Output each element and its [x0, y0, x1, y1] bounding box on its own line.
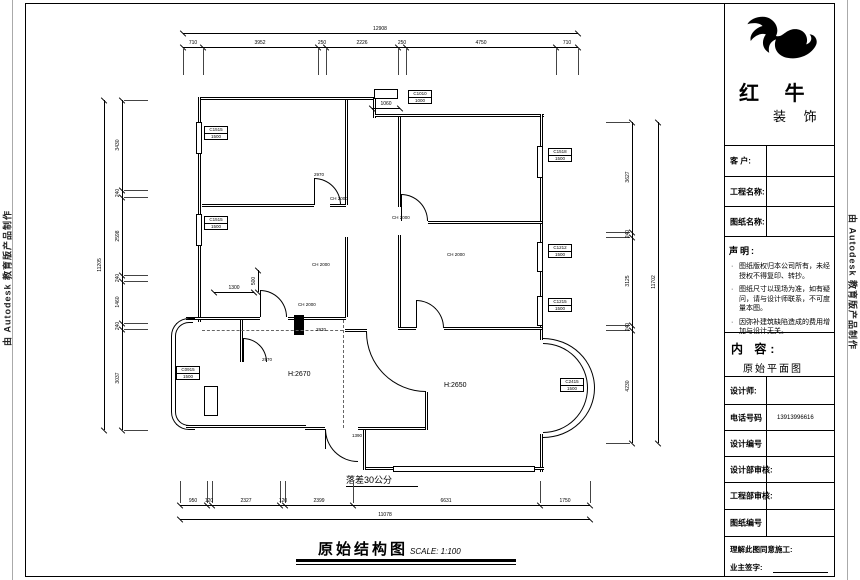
dim-line: [658, 122, 659, 443]
door-arc: [416, 300, 444, 328]
dim-label: 11702: [651, 275, 657, 289]
wall: [444, 327, 542, 330]
dim-label: 3627: [625, 171, 631, 182]
dim-line: [183, 47, 578, 48]
window-tag: C09151500: [176, 366, 200, 380]
brand-area: 红 牛 装 饰: [725, 3, 836, 145]
dim-label: 4750: [475, 40, 486, 46]
statement-item: · 图纸尺寸以现场为准，如有疑问，请与设计师联系，不可度量本图。: [729, 285, 831, 314]
content-heading: 内 容:: [731, 340, 778, 357]
wall: [202, 204, 314, 207]
drop-note-underline: [346, 486, 418, 487]
field-row-designer: 设计师:: [725, 376, 835, 404]
fixture: [204, 386, 218, 416]
content-value: 原始平面图: [743, 360, 803, 375]
field-label: 图纸编号: [730, 518, 762, 529]
window-tag: C12151500: [548, 298, 572, 312]
window: [196, 122, 202, 154]
dim-ext: [326, 49, 327, 75]
dim-label: 11205: [97, 258, 103, 272]
dim-ext: [124, 329, 148, 330]
window-tag: C12121500: [548, 244, 572, 258]
plan-label: 2970: [262, 357, 272, 362]
dim-line: [104, 100, 105, 430]
dim-label: 120: [279, 498, 287, 504]
wall: [186, 425, 306, 428]
cell-divider: [766, 207, 767, 236]
sheet-scale: SCALE: 1:100: [410, 547, 461, 556]
dim-label: 3037: [115, 372, 121, 383]
dim-line: [183, 33, 578, 34]
cell-divider: [766, 457, 767, 482]
dim-ext: [124, 190, 148, 191]
plan-label: CH 2000: [447, 252, 465, 257]
dim-ext: [406, 49, 407, 75]
plan-label: CH 2000: [392, 215, 410, 220]
plan-label: CH 2000: [312, 262, 330, 267]
drawing-sheet: 由 Autodesk 教育版产品制作 由 Autodesk 教育版产品制作: [0, 0, 860, 580]
window-tag-size: 1000: [409, 98, 431, 104]
content-block: 内 容: 原始平面图: [725, 332, 835, 376]
dim-label: 3125: [625, 275, 631, 286]
signature-line: [773, 572, 828, 573]
wall: [345, 100, 348, 205]
statement-block: 声明: · 图纸版权归本公司所有，未经授权不得复印、转抄。 · 图纸尺寸以现场为…: [725, 236, 835, 332]
window-tag-size: 1500: [549, 306, 571, 312]
field-label: 客 户:: [730, 156, 751, 167]
cell-divider: [766, 510, 767, 536]
dashed-line: [343, 320, 344, 428]
brand-name: 红 牛: [739, 77, 815, 106]
dim-label: 710: [563, 40, 571, 46]
dim-ext: [124, 430, 148, 431]
owner-sign-label: 业主签字:: [730, 562, 763, 573]
wall: [200, 97, 376, 100]
field-row-sheet-no: 图纸编号: [725, 509, 835, 536]
field-label: 电话号码: [730, 412, 762, 423]
window: [537, 146, 543, 178]
plan-label: 2970: [316, 327, 326, 332]
cell-divider: [766, 146, 767, 176]
door-leaf: [325, 429, 326, 449]
wall: [345, 329, 367, 332]
dim-label: 240: [625, 323, 631, 331]
window-tag: C24151500: [560, 378, 584, 392]
field-label: 设计师:: [730, 385, 757, 396]
dim-ext: [590, 481, 591, 503]
dim-line: [180, 505, 590, 506]
bull-logo-icon: [739, 11, 823, 77]
dim-ext: [124, 197, 148, 198]
window-tag-size: 1500: [205, 224, 227, 230]
wall: [363, 430, 366, 470]
cell-divider: [766, 431, 767, 456]
dim-ext: [124, 323, 148, 324]
window-tag-size: 1500: [177, 374, 199, 380]
plan-label: H:2650: [444, 382, 467, 389]
dim-ext: [318, 49, 319, 75]
window-tag-size: 1500: [549, 156, 571, 162]
sheet-title: 原始结构图: [318, 538, 408, 559]
window-tag: C10101000: [408, 90, 432, 104]
brand-subname: 装 饰: [773, 106, 824, 125]
bullet-icon: ·: [731, 285, 733, 295]
window-tag: C15181500: [548, 148, 572, 162]
statement-text: 图纸尺寸以现场为准，如有疑问，请与设计师联系，不可度量本图。: [739, 286, 830, 312]
plan-label: CH 2000: [330, 196, 348, 201]
dim-line: [122, 100, 123, 430]
window-tag-size: 1500: [561, 386, 583, 392]
dim-label: 240: [625, 230, 631, 238]
dim-line: [372, 108, 400, 109]
field-row-phone: 电话号码 13913996616: [725, 404, 835, 430]
window-tag-size: 1500: [205, 134, 227, 140]
dim-line: [632, 122, 633, 443]
bullet-icon: ·: [731, 262, 733, 272]
dim-label: 250: [398, 40, 406, 46]
field-label: 工程名称:: [730, 186, 765, 197]
window: [196, 214, 202, 246]
dim-ext: [398, 49, 399, 75]
dim-label: 6631: [440, 498, 451, 504]
bullet-icon: ·: [731, 318, 733, 328]
window: [393, 466, 535, 472]
structural-column: [294, 315, 304, 335]
dim-label: 240: [115, 322, 121, 330]
flue-box: [374, 89, 398, 99]
window-tag: C15151500: [204, 126, 228, 140]
dim-label: 2399: [313, 498, 324, 504]
field-row-design-no: 设计编号: [725, 430, 835, 456]
plan-label: CH 2000: [298, 302, 316, 307]
plan-label: H:2670: [288, 371, 311, 378]
dim-ext: [180, 481, 181, 503]
statement-heading: 声明:: [729, 244, 831, 257]
dim-label: 240: [115, 189, 121, 197]
dim-line: [258, 270, 259, 292]
title-bar: [296, 559, 516, 562]
wall: [398, 235, 401, 330]
phone-value: 13913996616: [777, 415, 814, 421]
field-row-drawing: 图纸名称:: [725, 206, 835, 236]
wall: [202, 317, 260, 320]
dim-ext: [183, 49, 184, 75]
cell-divider: [766, 377, 767, 404]
title-bar-thin: [296, 564, 516, 565]
dim-label: 710: [189, 40, 197, 46]
dim-label: 2598: [115, 230, 121, 241]
dim-label: 240: [115, 274, 121, 282]
dim-label: 4230: [625, 380, 631, 391]
wall: [425, 392, 428, 430]
cell-divider: [766, 177, 767, 206]
statement-text: 图纸版权归本公司所有，未经授权不得复印、转抄。: [739, 263, 830, 280]
door-leaf: [243, 338, 244, 362]
field-row-customer: 客 户:: [725, 145, 835, 176]
dim-line: [180, 519, 590, 520]
door-leaf: [314, 178, 315, 205]
window: [537, 242, 543, 272]
window: [537, 296, 543, 326]
signature-block: 理解此图同意施工: 业主签字:: [725, 536, 835, 577]
dim-label: 1060: [380, 101, 391, 107]
dim-ext: [540, 481, 541, 503]
door-leaf: [416, 300, 417, 328]
dim-ext: [203, 49, 204, 75]
plan-label: 2970: [314, 172, 324, 177]
wall: [358, 427, 428, 430]
field-row-eng-review: 工程部审核:: [725, 482, 835, 509]
field-row-design-review: 设计部审核:: [725, 456, 835, 482]
dim-ext: [124, 100, 148, 101]
dim-ext: [556, 49, 557, 75]
field-row-project: 工程名称:: [725, 176, 835, 206]
dim-label: 2327: [240, 498, 251, 504]
title-block: 红 牛 装 饰 客 户: 工程名称: 图纸名称: 声明: · 图纸版权归本公司所…: [724, 3, 835, 577]
dim-line: [214, 292, 254, 293]
wall: [398, 327, 416, 330]
dim-ext: [606, 443, 630, 444]
plan-label: 1390: [352, 433, 362, 438]
dim-label: 2226: [356, 40, 367, 46]
dim-label: 3952: [254, 40, 265, 46]
wall: [345, 237, 348, 317]
dim-label: 120: [205, 498, 213, 504]
dim-label: 1300: [228, 285, 239, 291]
dim-label: 3430: [115, 139, 121, 150]
dim-label: 11078: [378, 512, 392, 518]
cell-divider: [766, 483, 767, 509]
agree-label: 理解此图同意施工:: [730, 544, 793, 555]
door-arc: [260, 290, 287, 317]
dim-label: 500: [251, 277, 257, 285]
dim-label: 950: [189, 498, 197, 504]
window-tag-size: 1500: [549, 252, 571, 258]
dim-label: 1460: [115, 296, 121, 307]
cell-divider: [766, 405, 767, 430]
dim-label: 12908: [373, 26, 387, 32]
field-label: 设计编号: [730, 438, 762, 449]
wall: [305, 427, 325, 430]
wall: [428, 221, 542, 224]
dim-label: 250: [318, 40, 326, 46]
arch-opening: [366, 332, 426, 392]
dim-label: 1750: [559, 498, 570, 504]
dim-ext: [578, 49, 579, 75]
dim-ext: [124, 275, 148, 276]
dim-ext: [124, 281, 148, 282]
statement-item: · 图纸版权归本公司所有，未经授权不得复印、转抄。: [729, 262, 831, 281]
dim-ext: [606, 122, 630, 123]
field-label: 图纸名称:: [730, 216, 765, 227]
dim-ext: [353, 481, 354, 503]
window-tag: C15151500: [204, 216, 228, 230]
